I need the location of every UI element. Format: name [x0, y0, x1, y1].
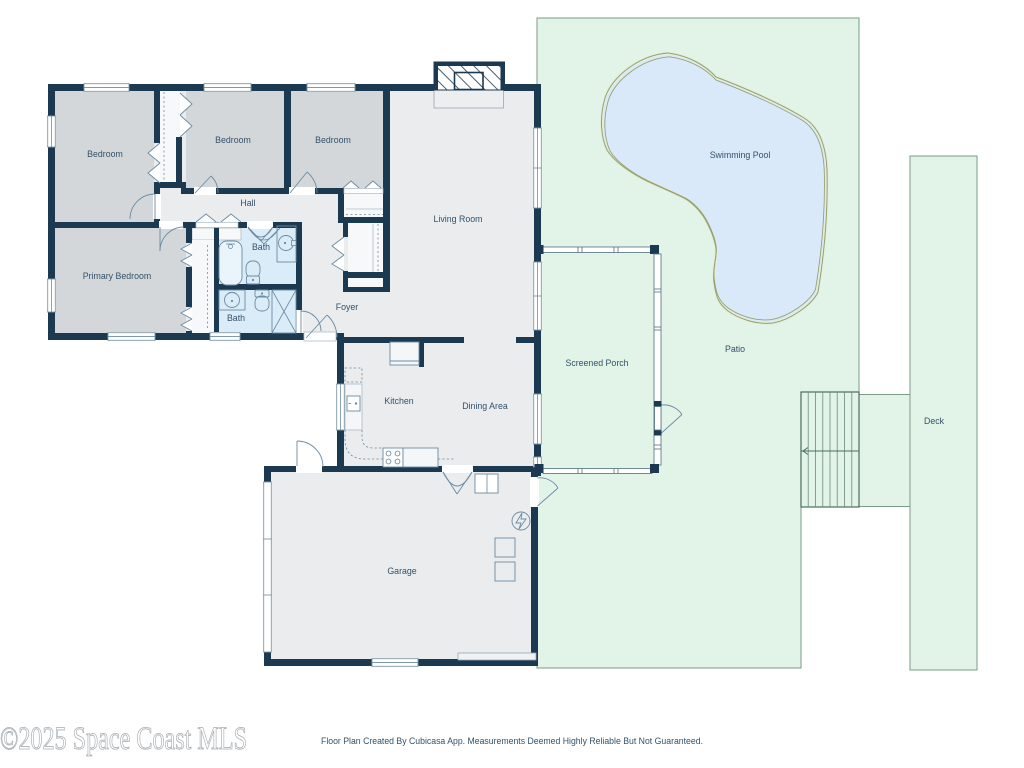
svg-text:©2025 Space Coast MLS: ©2025 Space Coast MLS: [0, 721, 247, 757]
svg-text:Kitchen: Kitchen: [384, 396, 413, 406]
svg-text:Garage: Garage: [387, 566, 416, 576]
svg-text:Bedroom: Bedroom: [315, 135, 351, 145]
svg-text:Deck: Deck: [924, 416, 945, 426]
svg-text:Bedroom: Bedroom: [87, 149, 123, 159]
svg-text:Living Room: Living Room: [434, 214, 483, 224]
svg-text:Bath: Bath: [227, 313, 245, 323]
svg-text:Screened Porch: Screened Porch: [565, 358, 628, 368]
svg-text:Bedroom: Bedroom: [215, 135, 251, 145]
svg-text:Floor Plan Created By Cubicasa: Floor Plan Created By Cubicasa App. Meas…: [321, 736, 703, 746]
svg-text:Primary Bedroom: Primary Bedroom: [83, 271, 151, 281]
svg-text:Foyer: Foyer: [336, 302, 359, 312]
svg-text:Dining Area: Dining Area: [462, 401, 508, 411]
svg-text:Swimming Pool: Swimming Pool: [710, 150, 771, 160]
svg-text:Patio: Patio: [725, 344, 745, 354]
svg-text:Bath: Bath: [252, 242, 270, 252]
svg-text:Hall: Hall: [240, 198, 255, 208]
